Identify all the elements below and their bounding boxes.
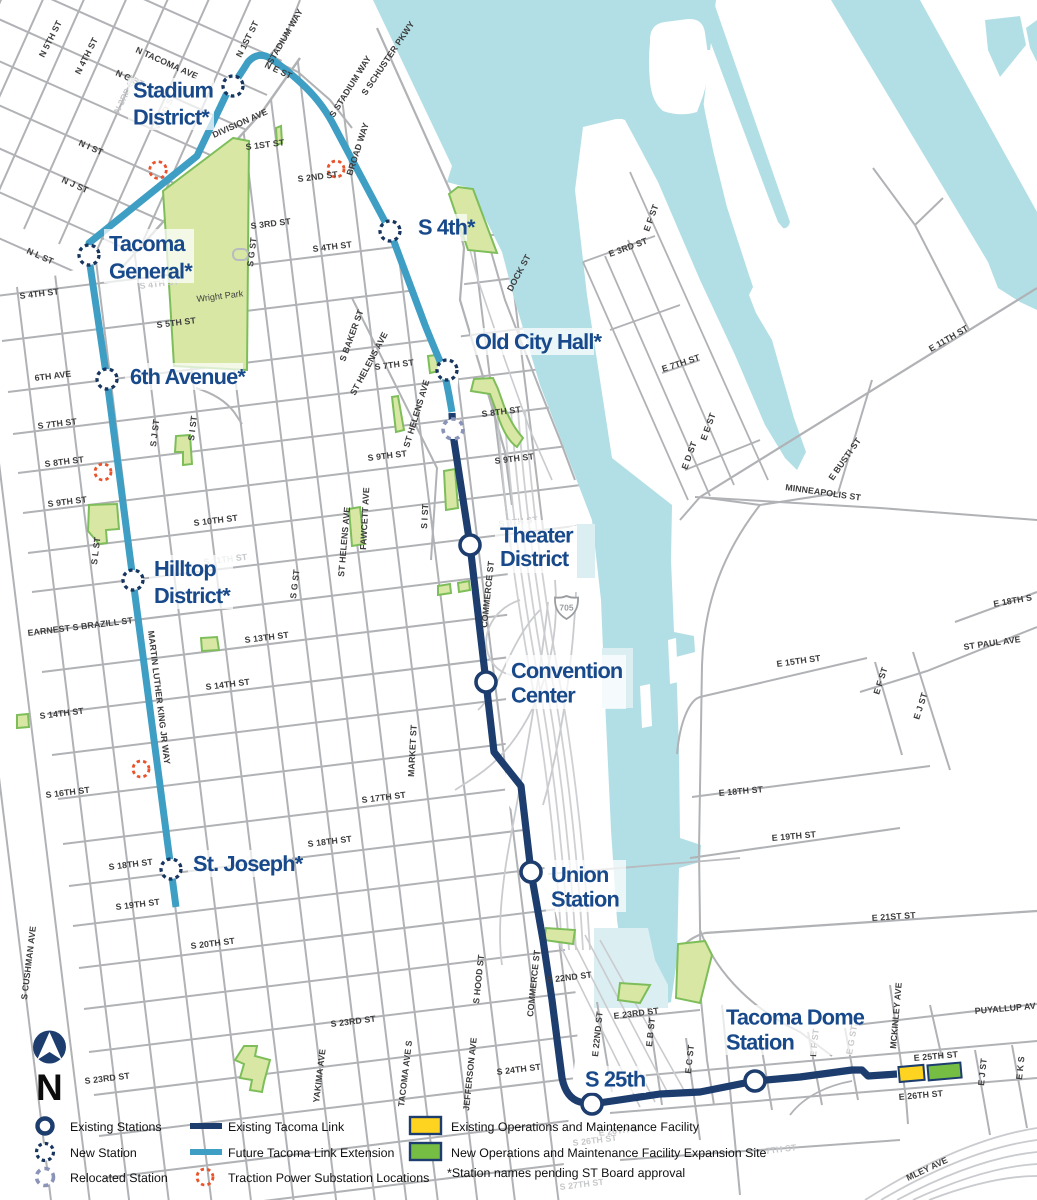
svg-text:Old City Hall*: Old City Hall* bbox=[475, 329, 603, 354]
svg-text:New Station: New Station bbox=[70, 1146, 137, 1160]
svg-text:Stadium: Stadium bbox=[133, 78, 214, 103]
svg-text:Convention: Convention bbox=[511, 658, 622, 683]
svg-text:Existing Stations: Existing Stations bbox=[70, 1120, 162, 1134]
svg-text:N: N bbox=[36, 1067, 63, 1108]
svg-text:Station: Station bbox=[551, 887, 619, 912]
svg-text:*Station names pending ST Boar: *Station names pending ST Board approval bbox=[447, 1166, 685, 1180]
svg-text:Tacoma: Tacoma bbox=[109, 231, 186, 256]
svg-text:Existing Operations and Mainte: Existing Operations and Maintenance Faci… bbox=[451, 1120, 700, 1134]
svg-text:Future Tacoma Link Extension: Future Tacoma Link Extension bbox=[228, 1146, 395, 1160]
svg-text:St. Joseph*: St. Joseph* bbox=[193, 851, 304, 876]
svg-text:Union: Union bbox=[551, 862, 609, 887]
svg-text:S 25th: S 25th bbox=[585, 1067, 645, 1092]
svg-text:Hilltop: Hilltop bbox=[154, 556, 216, 581]
svg-text:District*: District* bbox=[133, 105, 210, 130]
svg-text:6th Avenue*: 6th Avenue* bbox=[130, 364, 246, 389]
svg-text:Relocated Station: Relocated Station bbox=[70, 1171, 168, 1185]
svg-text:Station: Station bbox=[726, 1030, 794, 1055]
svg-text:Tacoma Dome: Tacoma Dome bbox=[726, 1005, 865, 1030]
svg-text:Theater: Theater bbox=[500, 523, 574, 548]
svg-text:General*: General* bbox=[109, 259, 193, 284]
svg-text:District*: District* bbox=[154, 583, 231, 608]
svg-text:Center: Center bbox=[511, 683, 576, 708]
svg-text:Existing Tacoma Link: Existing Tacoma Link bbox=[228, 1120, 345, 1134]
svg-text:705: 705 bbox=[559, 603, 573, 613]
svg-text:New Operations and Maintenance: New Operations and Maintenance Facility … bbox=[451, 1146, 767, 1160]
svg-text:S 4th*: S 4th* bbox=[418, 215, 476, 240]
svg-text:Traction Power Substation Loca: Traction Power Substation Locations bbox=[228, 1171, 429, 1185]
svg-text:S I ST: S I ST bbox=[419, 503, 430, 529]
svg-text:District: District bbox=[500, 546, 569, 571]
